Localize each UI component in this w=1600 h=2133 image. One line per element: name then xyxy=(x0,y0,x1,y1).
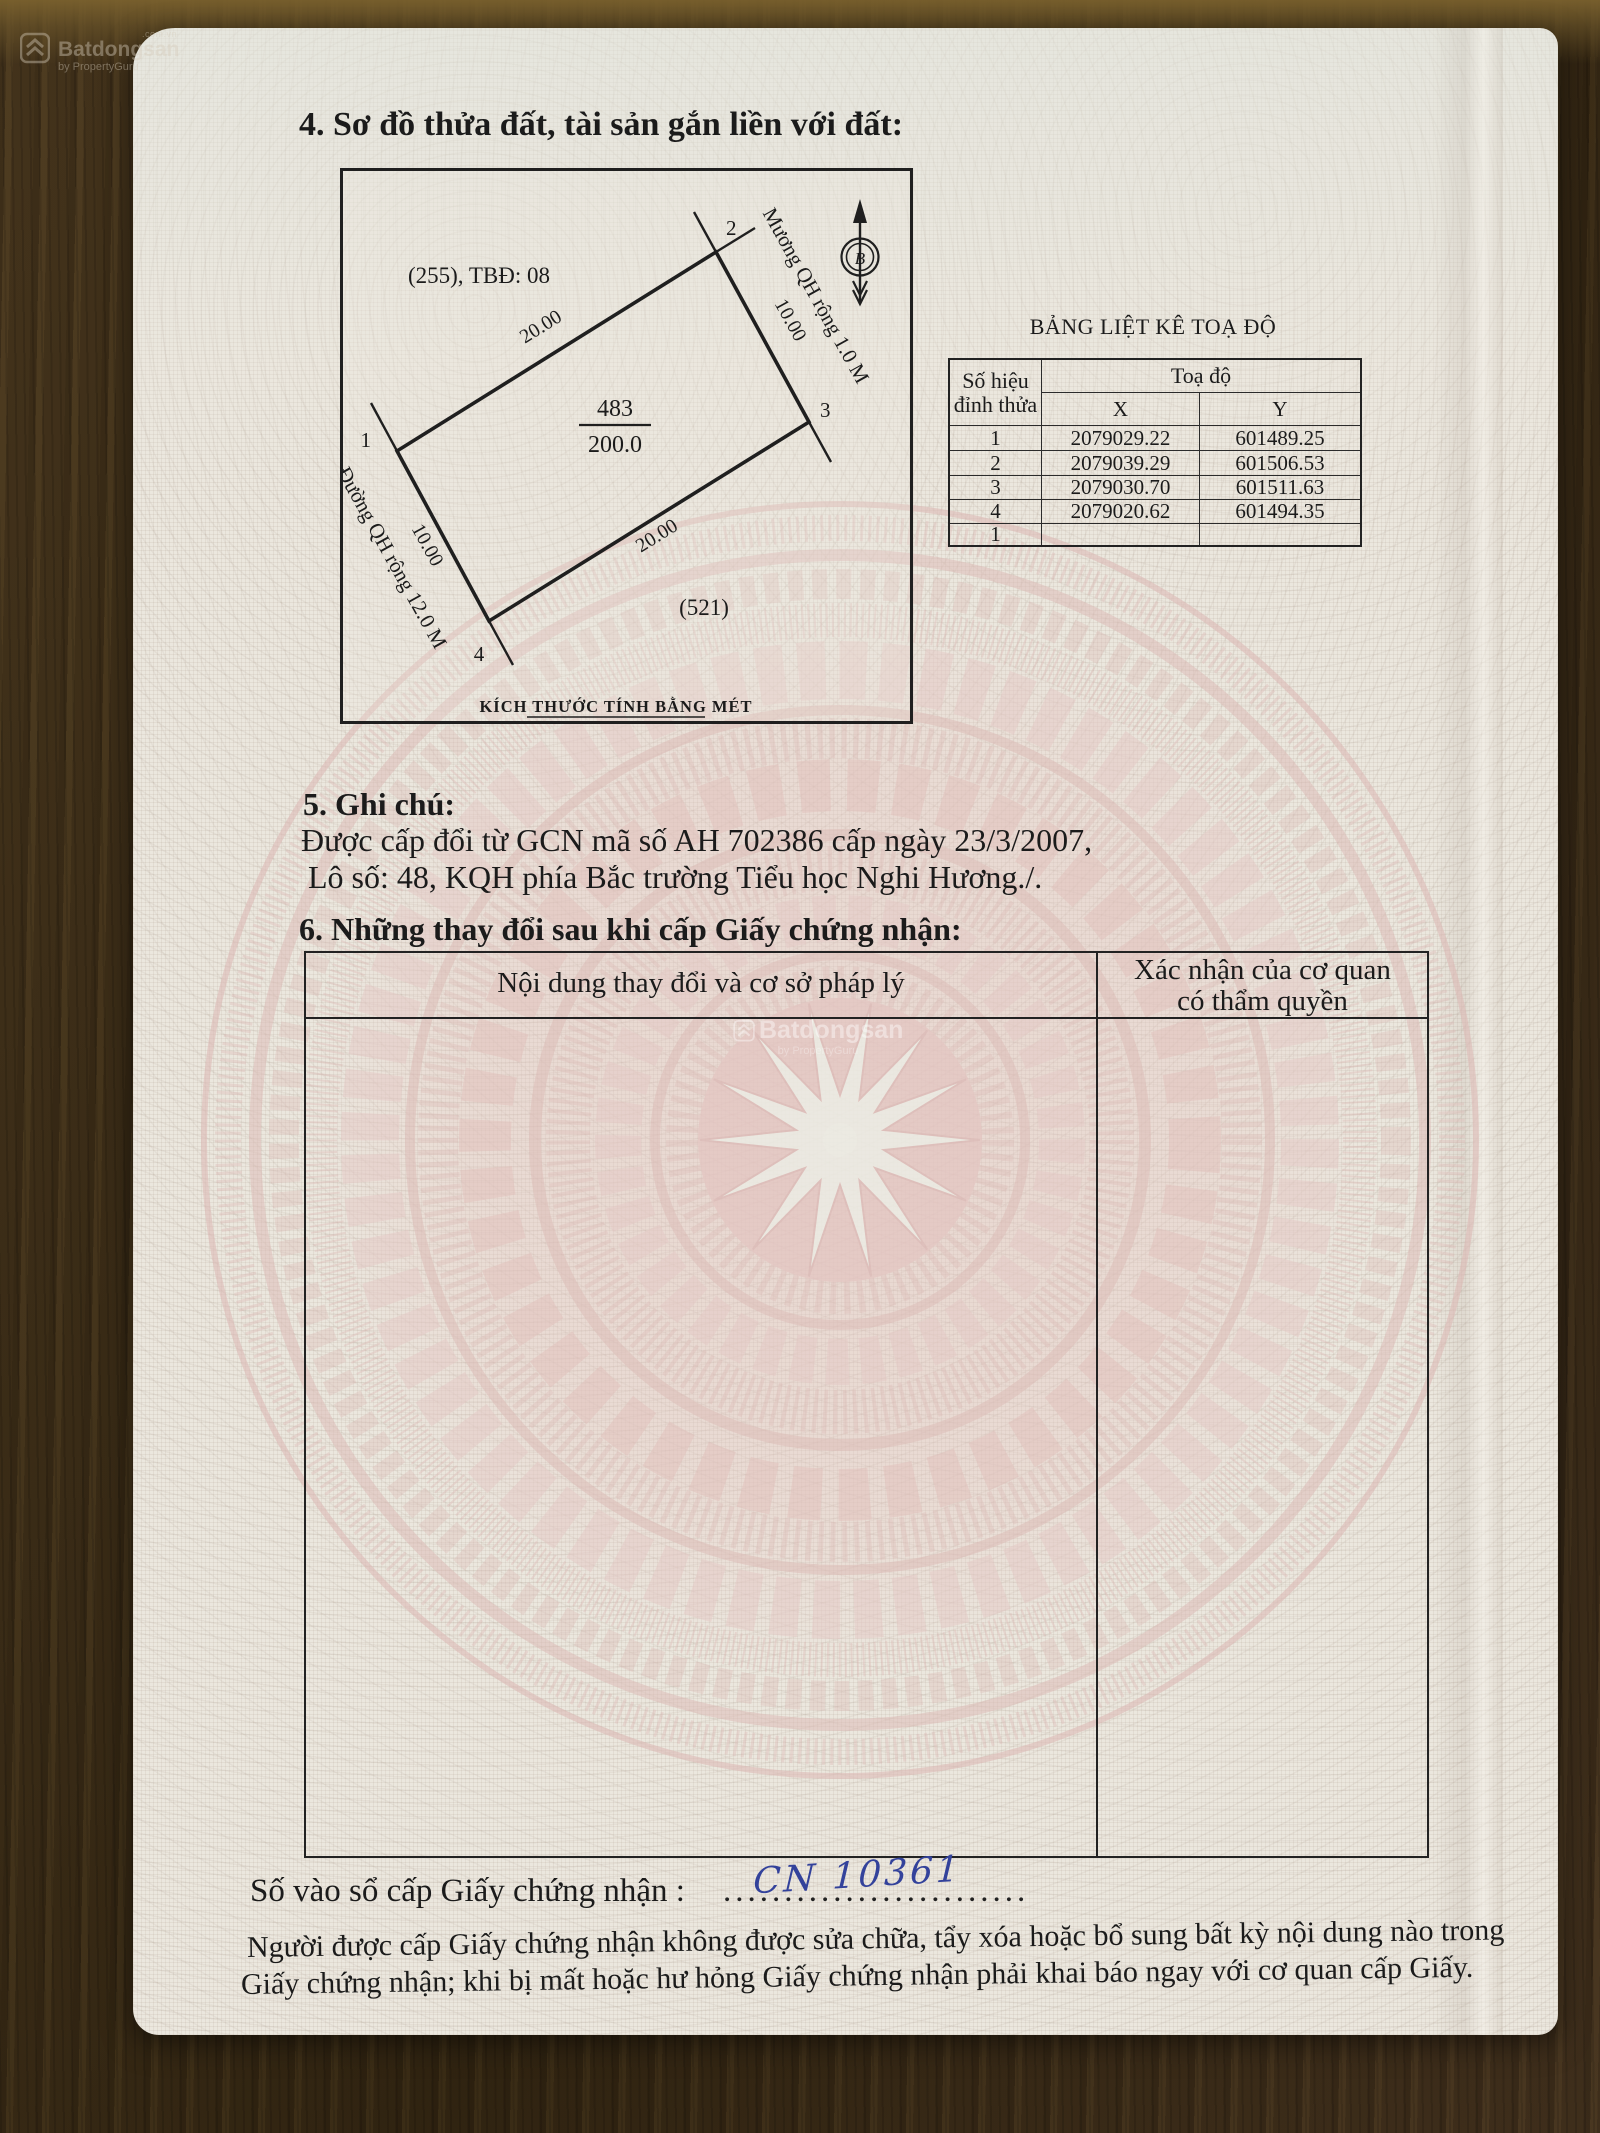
vertex-label-4: 4 xyxy=(474,642,485,666)
north-letter: B xyxy=(855,249,866,268)
table-row-cell: 2 xyxy=(950,450,1042,475)
serial-number-label: Số vào sổ cấp Giấy chứng nhận : xyxy=(250,1873,685,1910)
table-row-cell xyxy=(1042,523,1200,545)
table-row-cell: 4 xyxy=(950,499,1042,523)
coordinate-table-col-x: X xyxy=(1042,392,1200,425)
watermark-brand: Batdongsan xyxy=(58,39,179,60)
certificate-page: Batdongsan by PropertyGuru 4. Sơ đồ thửa… xyxy=(133,28,1558,2035)
table-row-cell: 2079030.70 xyxy=(1042,475,1200,499)
coordinate-table-group-header: Toạ độ xyxy=(1042,360,1360,392)
coordinate-table: Số hiệu đỉnh thửa Toạ độ X Y 1 2079029.2… xyxy=(948,358,1362,547)
section6-heading: 6. Những thay đổi sau khi cấp Giấy chứng… xyxy=(299,911,962,948)
watermark-byline: by PropertyGuru xyxy=(58,62,179,73)
table-row-cell: 1 xyxy=(950,425,1042,450)
table-row-cell: 2079039.29 xyxy=(1042,450,1200,475)
edge-length-4-3: 20.00 xyxy=(632,515,682,558)
parcel-area: 200.0 xyxy=(588,432,642,458)
photo-of-certificate-on-table: .com.vn Batdongsan by PropertyGuru xyxy=(0,0,1600,2133)
edge-length-1-4: 10.00 xyxy=(407,520,448,570)
batdongsan-logo-icon xyxy=(20,30,50,69)
parcel-number: 483 xyxy=(597,396,633,422)
table-row-cell: 601489.25 xyxy=(1200,425,1360,450)
section6-column-divider xyxy=(1096,953,1098,1856)
section5-note-line1: Được cấp đổi từ GCN mã số AH 702386 cấp … xyxy=(301,822,1092,859)
table-row-cell: 3 xyxy=(950,475,1042,499)
edge-length-2-3: 10.00 xyxy=(770,295,811,345)
vertex-label-2: 2 xyxy=(726,216,737,240)
scale-note: KÍCH THƯỚC TÍNH BẰNG MÉT xyxy=(479,697,752,716)
section4-heading: 4. Sơ đồ thửa đất, tài sản gắn liền với … xyxy=(299,106,903,144)
table-row-cell: 601506.53 xyxy=(1200,450,1360,475)
section6-changes-table: Nội dung thay đổi và cơ sở pháp lý Xác n… xyxy=(304,951,1429,1858)
watermark-batdongsan-top: .com.vn Batdongsan by PropertyGuru xyxy=(20,30,179,73)
table-row-cell xyxy=(1200,523,1360,545)
section5-heading: 5. Ghi chú: xyxy=(303,786,455,823)
table-row-cell: 2079020.62 xyxy=(1042,499,1200,523)
neighbor-parcel-label: (521) xyxy=(679,595,729,620)
table-row-cell: 1 xyxy=(950,523,1042,545)
section6-col2-header: Xác nhận của cơ quan có thẩm quyền xyxy=(1098,953,1427,1017)
coordinate-table-col-y: Y xyxy=(1200,392,1360,425)
vertex-label-3: 3 xyxy=(820,398,831,422)
table-row-cell: 601511.63 xyxy=(1200,475,1360,499)
parcel-diagram-box: 1 2 3 4 20.00 10.00 20.00 10.00 483 200.… xyxy=(340,168,913,724)
parcel-diagram: 1 2 3 4 20.00 10.00 20.00 10.00 483 200.… xyxy=(343,171,910,721)
coordinate-table-title: BẢNG LIỆT KÊ TOẠ ĐỘ xyxy=(948,314,1358,340)
table-row-cell: 2079029.22 xyxy=(1042,425,1200,450)
vertex-label-1: 1 xyxy=(361,428,372,452)
section6-header-underline xyxy=(306,1017,1427,1019)
edge-length-1-2: 20.00 xyxy=(516,306,566,349)
coordinate-table-corner-header: Số hiệu đỉnh thửa xyxy=(950,360,1042,425)
section6-col1-header: Nội dung thay đổi và cơ sở pháp lý xyxy=(306,967,1096,1000)
section5-note-line2: Lô số: 48, KQH phía Bắc trường Tiểu học … xyxy=(308,859,1042,896)
map-sheet-label: (255), TBĐ: 08 xyxy=(408,263,550,288)
table-row-cell: 601494.35 xyxy=(1200,499,1360,523)
